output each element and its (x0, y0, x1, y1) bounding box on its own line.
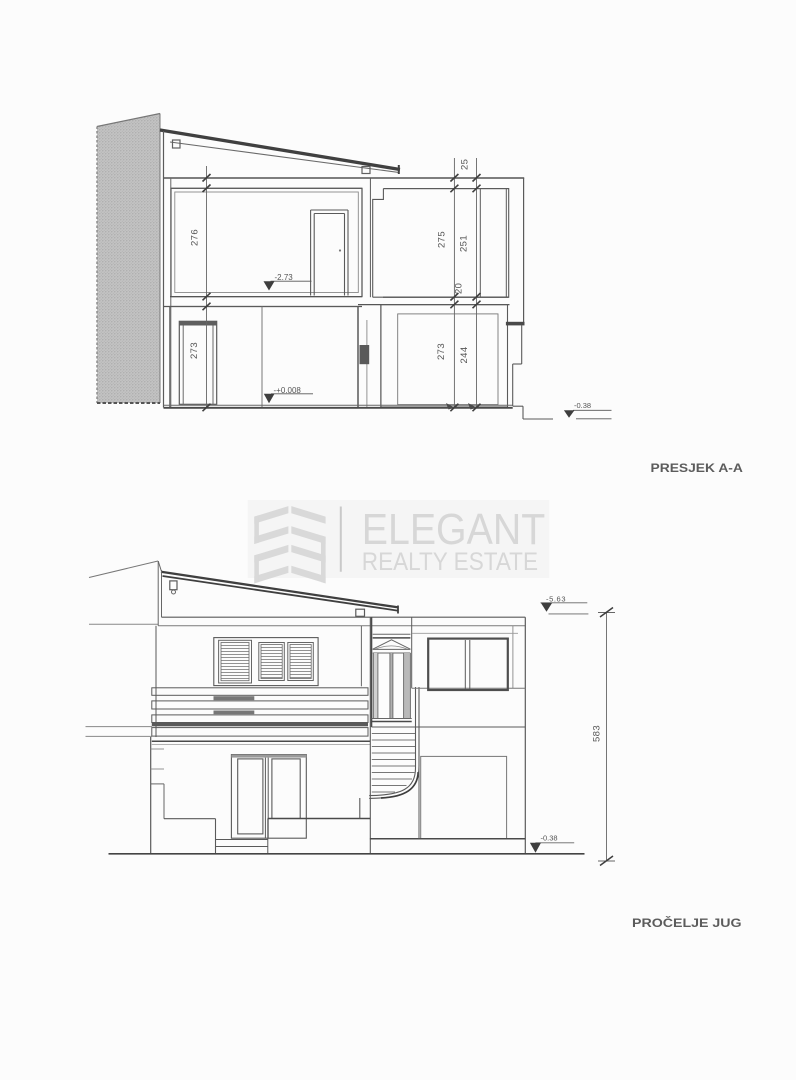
svg-text:273: 273 (189, 342, 200, 359)
svg-text:25: 25 (460, 159, 471, 170)
svg-text:273: 273 (436, 343, 447, 360)
svg-text:PROČELJE JUG: PROČELJE JUG (632, 915, 742, 930)
svg-text:251: 251 (459, 235, 470, 252)
svg-text:-0.38: -0.38 (574, 401, 591, 410)
svg-text:275: 275 (437, 231, 448, 248)
svg-text:ELEGANT: ELEGANT (362, 505, 545, 554)
svg-text:PRESJEK A-A: PRESJEK A-A (651, 461, 744, 475)
svg-text:244: 244 (459, 346, 470, 363)
svg-text:583: 583 (592, 725, 603, 742)
svg-text:-5.63: -5.63 (546, 595, 566, 604)
svg-text:-2.73: -2.73 (275, 273, 294, 282)
svg-text:276: 276 (190, 229, 201, 246)
svg-text:REALTY ESTATE: REALTY ESTATE (362, 548, 538, 576)
svg-text:-0.38: -0.38 (541, 833, 558, 842)
svg-text:20: 20 (454, 283, 465, 294)
